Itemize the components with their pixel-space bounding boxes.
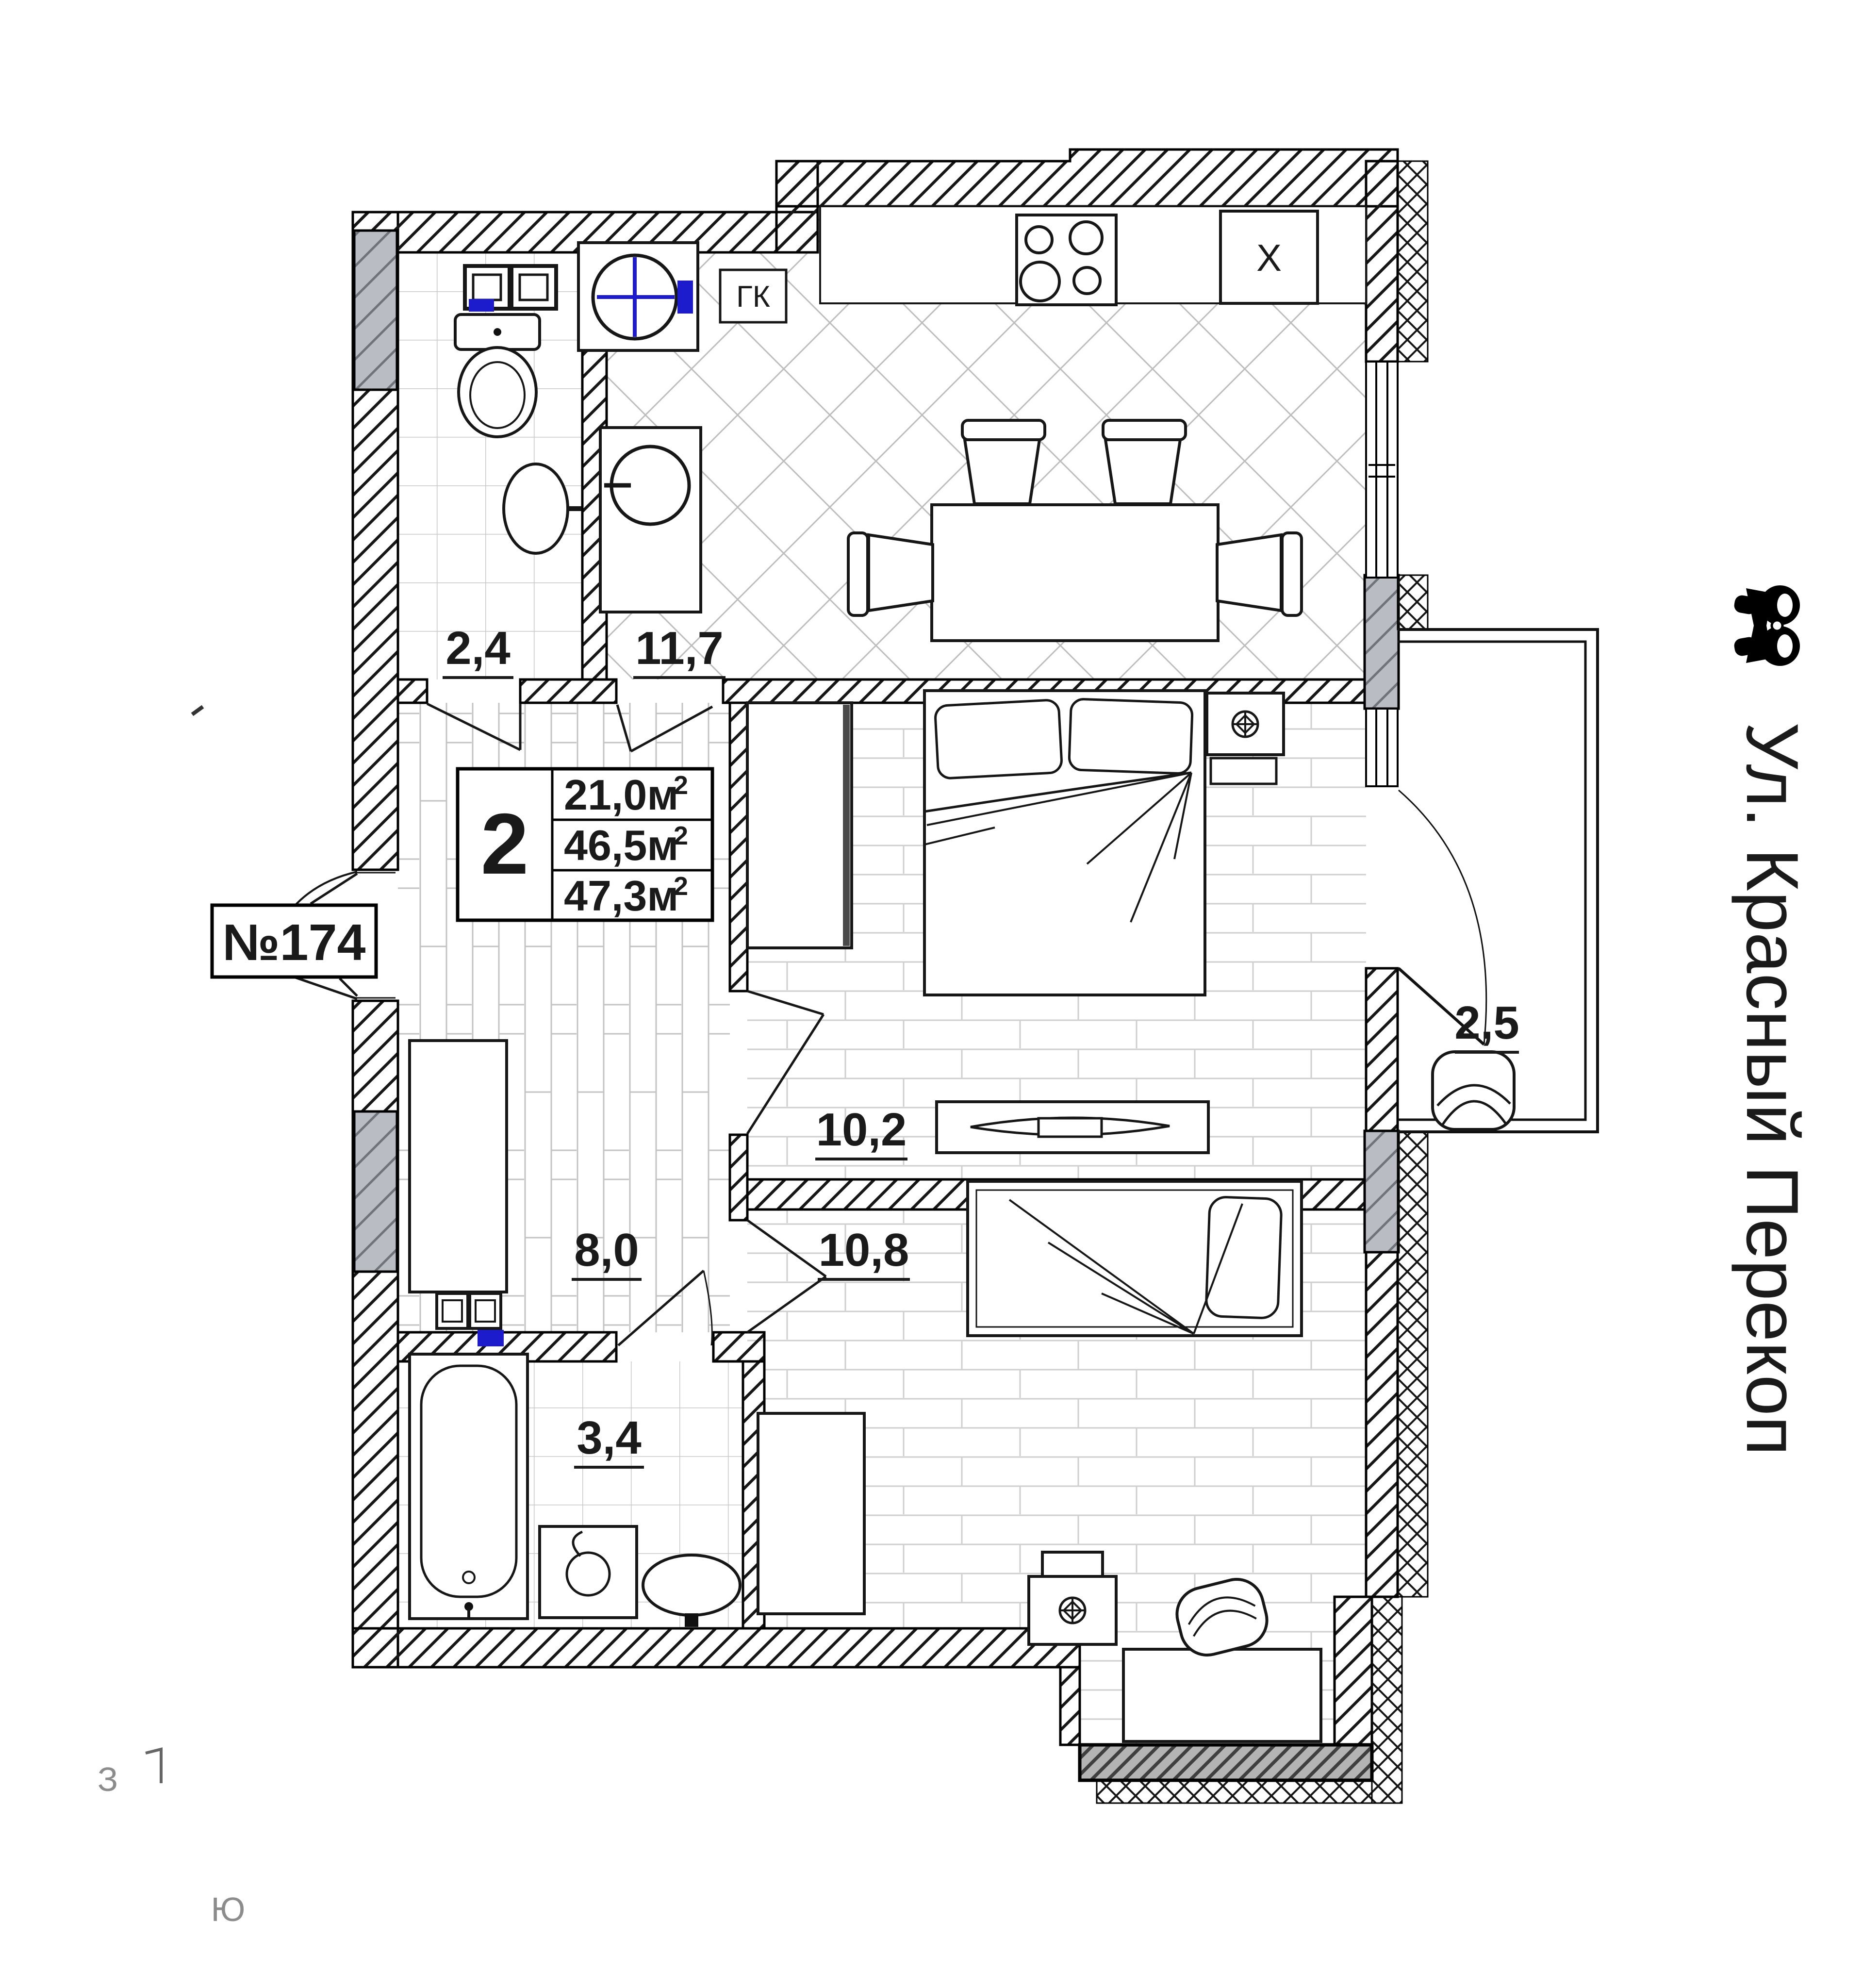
double-bed-icon xyxy=(924,691,1205,995)
wc-cabinet-icon xyxy=(465,266,556,312)
floor-plan-drawing: 2,4 11,7 8,0 10,2 10,8 3,4 2,5 ГК X 2 21… xyxy=(0,0,1863,1988)
kitchen-sink-icon xyxy=(578,243,698,350)
single-bed-icon xyxy=(968,1181,1302,1336)
compass-arrow-mark xyxy=(146,1749,161,1783)
dining-chair-top-right xyxy=(1103,420,1186,504)
compass-south-label: Ю xyxy=(211,1890,246,1928)
dining-chair-right xyxy=(1217,533,1302,615)
total-area-sup: 2 xyxy=(674,872,688,901)
rooms-count: 2 xyxy=(481,795,529,892)
bedroom2-wardrobe xyxy=(758,1413,864,1614)
binoculars-icon xyxy=(1733,585,1800,666)
right-wall-kitchen xyxy=(1366,161,1398,362)
desk xyxy=(1123,1649,1321,1741)
pilaster-right-upper xyxy=(1365,575,1399,709)
dining-chair-top-left xyxy=(962,420,1045,504)
floors xyxy=(398,206,1366,1745)
pilaster-right-lower xyxy=(1365,1131,1399,1252)
bathroom-blue-valve xyxy=(478,1330,504,1346)
bedroom1-wardrobe xyxy=(747,703,852,948)
bottom-step-wall xyxy=(1060,1667,1080,1745)
crosshatch-bottom-right xyxy=(1372,1597,1402,1803)
compass-west-label: З xyxy=(98,1760,118,1798)
bedroom2-area-label: 10,8 xyxy=(819,1224,909,1276)
stove-icon xyxy=(1017,215,1116,305)
left-wall-lower xyxy=(353,1001,398,1667)
nightstand-icon xyxy=(1207,693,1284,784)
bathroom-washing-machine-icon xyxy=(540,1526,637,1618)
crosshatch-below-balcony xyxy=(1398,1132,1428,1597)
hall-top-wall-b xyxy=(520,679,616,703)
street-name-label: Ул. Красный Перекоп xyxy=(1731,722,1814,1456)
hall-right-wall-a xyxy=(730,703,747,991)
apartment-area-sup: 2 xyxy=(674,821,688,850)
hall-right-wall-b xyxy=(730,1135,747,1220)
living-area-value: 21,0м xyxy=(564,771,678,819)
kitchen-washing-machine-icon xyxy=(600,428,701,612)
balcony-area-label: 2,5 xyxy=(1454,997,1519,1049)
title-block: 2 21,0м 2 46,5м 2 47,3м 2 xyxy=(458,769,712,920)
radiator-stand-icon xyxy=(1029,1552,1116,1644)
dining-chair-left xyxy=(848,533,933,615)
dining-table xyxy=(932,505,1218,641)
pilaster-left-top xyxy=(354,231,397,390)
hall-wardrobe xyxy=(410,1041,507,1292)
top-wall-kitchen xyxy=(776,149,1398,206)
crosshatch-above-balcony xyxy=(1398,575,1428,630)
hall-furniture xyxy=(410,1041,507,1292)
balcony-chair-icon xyxy=(1433,1052,1514,1129)
floor-plan-page: 2,4 11,7 8,0 10,2 10,8 3,4 2,5 ГК X 2 21… xyxy=(0,0,1863,1988)
crosshatch-bottom-window xyxy=(1097,1780,1372,1803)
nightstand-shelf xyxy=(1211,758,1276,784)
hall-top-wall-a xyxy=(398,679,427,703)
hall-area-label: 8,0 xyxy=(574,1224,639,1276)
right-wall-lower xyxy=(1366,1252,1398,1597)
kitchen-window xyxy=(1366,362,1398,578)
kitchen-area-label: 11,7 xyxy=(635,622,724,674)
right-wall-bottom xyxy=(1335,1597,1372,1745)
bathtub-icon xyxy=(410,1354,528,1620)
crosshatch-kitchen xyxy=(1398,161,1428,362)
bathroom-top-wall-b xyxy=(713,1332,764,1361)
balcony xyxy=(1398,630,1598,1132)
street-side: Ул. Красный Перекоп xyxy=(1731,585,1814,1456)
apartment-number: №174 xyxy=(222,914,365,971)
wc-blue-valve xyxy=(469,299,494,312)
bedroom1-window xyxy=(1366,709,1398,786)
bottom-wall xyxy=(353,1628,1080,1667)
apartment-area-value: 46,5м xyxy=(564,821,678,869)
tv-stand-icon xyxy=(937,1102,1208,1153)
compass: З Ю xyxy=(98,1749,246,1928)
tick-mark xyxy=(192,707,203,714)
pilaster-left-bottom xyxy=(354,1111,397,1272)
apartment-number-plate: №174 xyxy=(212,905,376,977)
toilet-icon xyxy=(455,315,540,437)
gas-boiler-label: ГК xyxy=(736,280,770,314)
wc-area-label: 2,4 xyxy=(445,622,510,674)
living-area-sup: 2 xyxy=(674,771,688,800)
pillow-single xyxy=(1206,1196,1282,1318)
bathroom-area-label: 3,4 xyxy=(577,1412,641,1464)
fridge-label: X xyxy=(1256,236,1282,279)
pillow-right xyxy=(1069,699,1193,774)
total-area-value: 47,3м xyxy=(564,872,678,920)
pillow-left xyxy=(935,699,1062,779)
bedroom1-area-label: 10,2 xyxy=(816,1104,907,1156)
bedroom2-window-band xyxy=(1080,1745,1372,1780)
right-wall-mid xyxy=(1366,968,1398,1132)
